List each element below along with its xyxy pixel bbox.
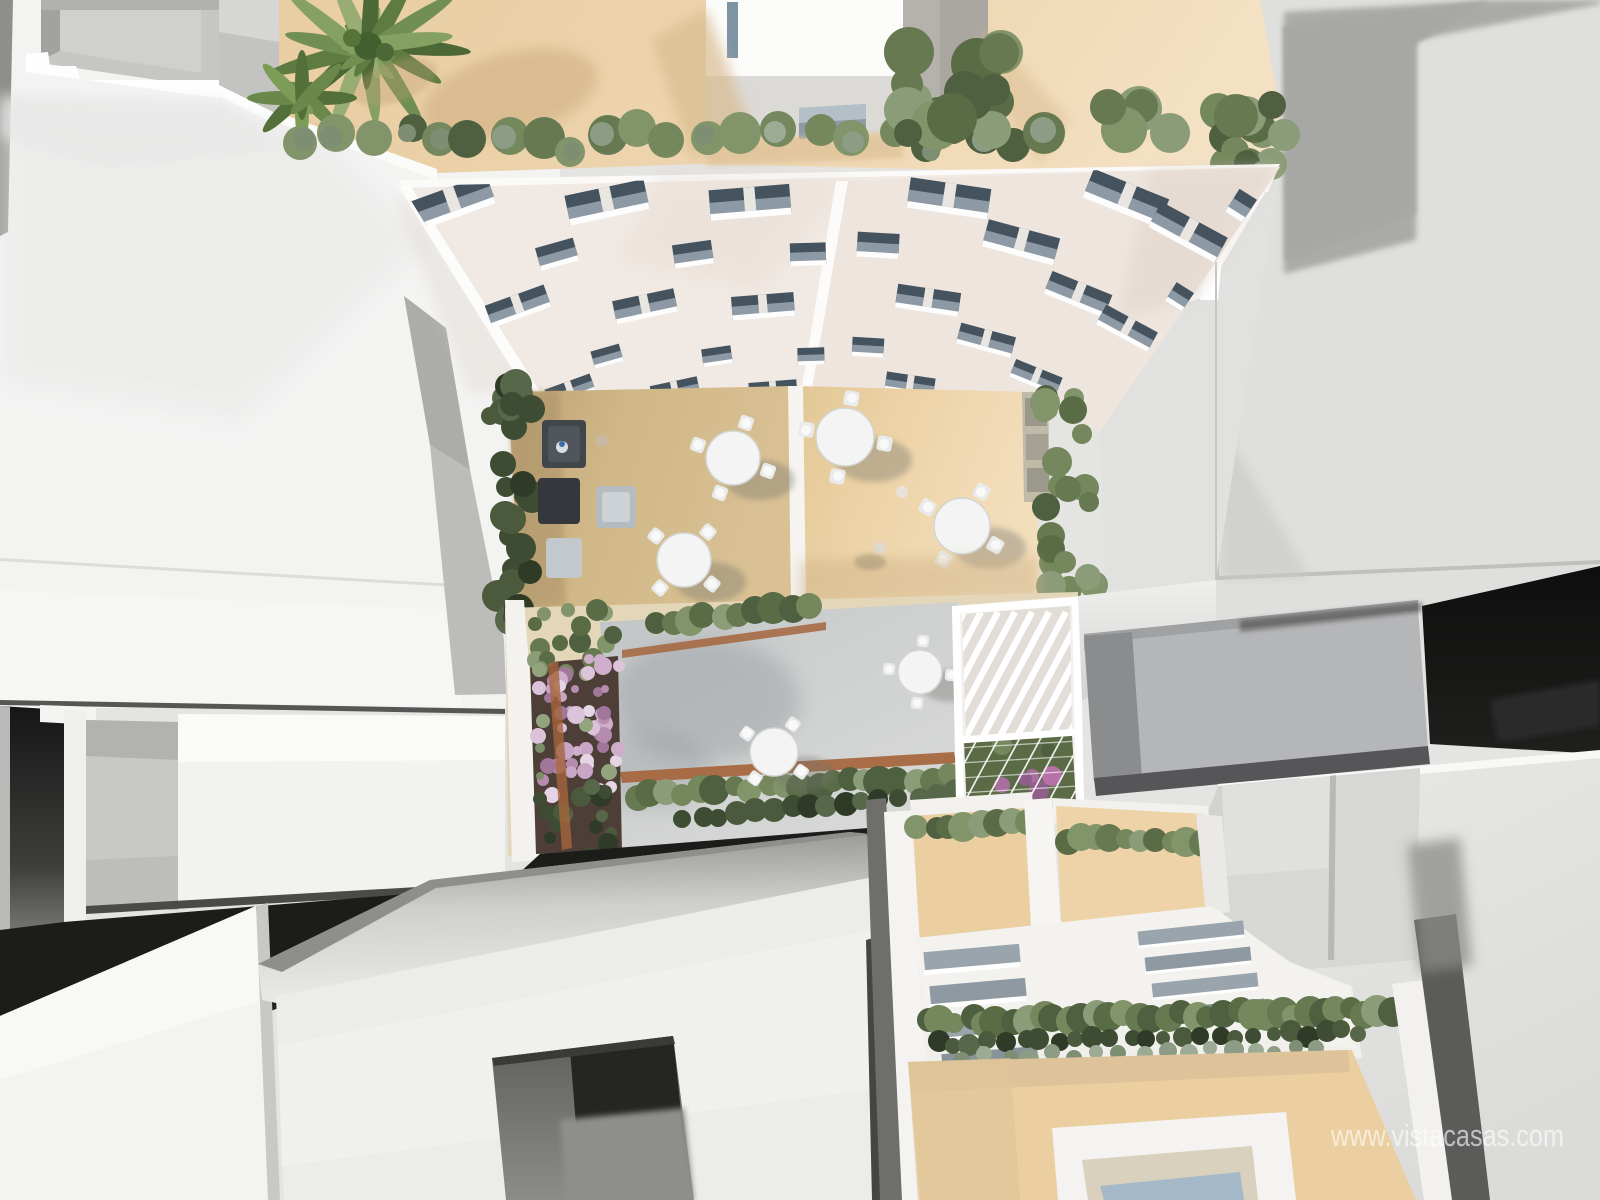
svg-text:www.vistacasas.com: www.vistacasas.com	[1330, 1118, 1564, 1153]
